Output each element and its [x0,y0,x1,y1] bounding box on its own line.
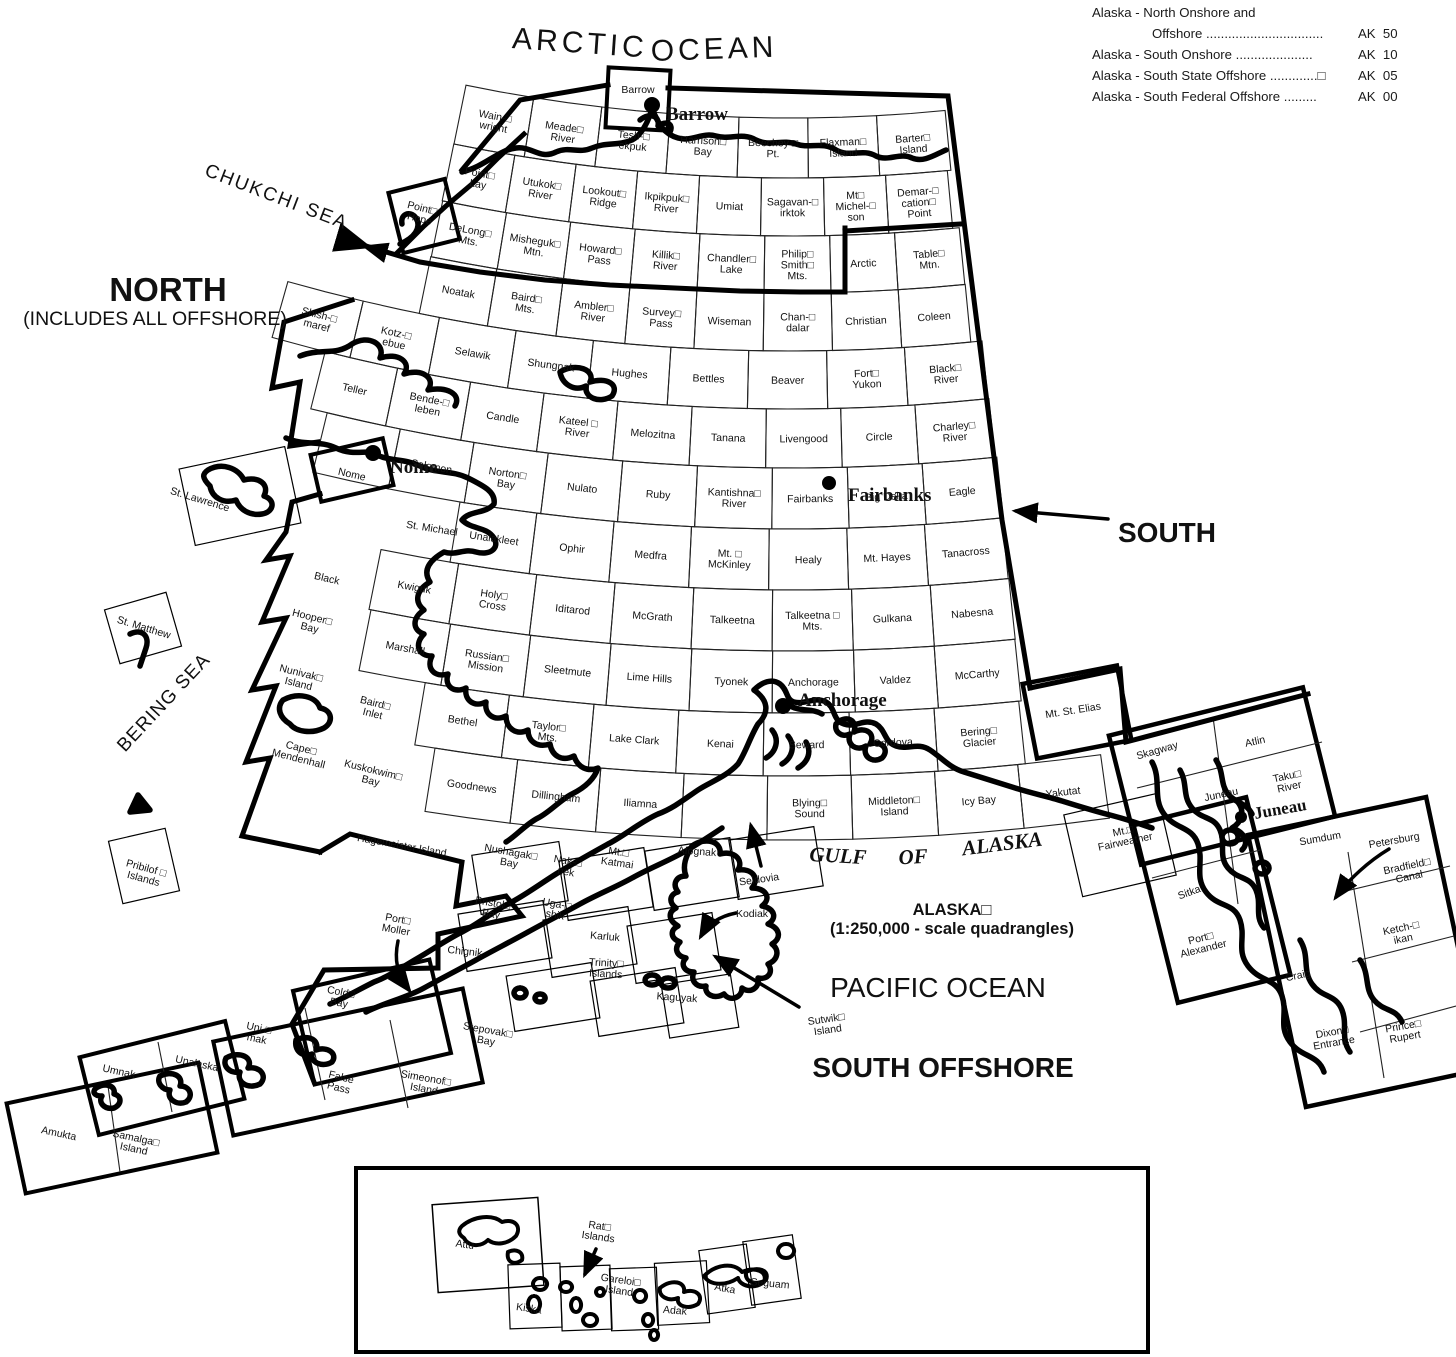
quad-label: Prince□Rupert [1384,1017,1424,1046]
quad-label: Iditarod [555,602,591,618]
quad-label: Circle [865,431,893,444]
quad-label: Taku□River [1272,767,1305,795]
quad-label: Fairbanks [787,493,833,505]
legend: Alaska - North Onshore and Offshore ....… [1092,2,1412,107]
quad-label: Karluk [590,930,621,945]
quad-label: Shungnak [527,357,576,375]
quad-label: Black□River [929,362,963,388]
quad-label: Beaver [771,375,805,387]
sea-label: ARCTIC [511,22,649,64]
panhandle-grid-lines [108,717,1456,1172]
quad-label: Kateel □River [557,414,599,441]
quad-label: Candle [485,410,520,427]
city-label: Nome [390,457,437,478]
legend-label: Alaska - South State Offshore ..........… [1092,65,1358,86]
quad-label: Hughes [611,366,648,381]
quad-label: Ruby [645,488,671,502]
quad-label: Cordova [873,736,913,750]
quad-label: Seward [789,739,825,751]
quad-label: Afognak [677,844,717,859]
quad-label: Simeonof□Island [398,1068,453,1099]
quad-label: Point□Hope [403,199,439,229]
quad-label: Fort□Yukon [852,367,882,391]
map-box [7,1063,218,1194]
city-dot [1235,811,1247,823]
quad-label: Nabesna [951,606,994,622]
quad-label: Pribilof □Islands [122,857,169,890]
quad-label: Coleen [917,310,951,325]
quad-label: Nulato [566,481,598,496]
quad-label: Stepovak□Bay [460,1020,514,1051]
quad-label: Bethel [447,713,478,729]
quad-label: Baird□Inlet [356,694,392,724]
quad-cell [681,774,768,840]
quad-label: Mt. □McKinley [708,547,752,571]
quad-label: McGrath [632,610,673,625]
quad-label: Tesh-□ekpuk [616,128,651,154]
quad-label: Rat□Islands [581,1218,617,1245]
alaska-quadrangle-index-map: Wain-□wrightMeade□RiverTesh-□ekpukHarris… [0,0,1456,1357]
quad-label: Shish-□maref [298,305,339,336]
quad-label: Talkeetna □Mts. [785,609,840,632]
quad-label: Anchorage [788,676,839,689]
quad-label: Baird□Mts. [509,290,543,317]
aleutian-inset-frame [356,1168,1148,1352]
quad-label: Lime Hills [626,671,672,686]
map-canvas: Wain-□wrightMeade□RiverTesh-□ekpukHarris… [0,0,1456,1357]
quad-label: Beechey □Pt. [748,137,799,160]
quad-label: Trinity□Islands [588,956,624,981]
sea-label: SOUTH OFFSHORE [812,1052,1073,1083]
quad-label: Howard□Pass [577,241,622,268]
quad-label: Unalaska [174,1053,219,1074]
quad-label: Ambler□River [572,299,614,326]
south-arrow [1016,511,1108,519]
quad-label: Icy Bay [961,794,997,809]
sea-label: PACIFIC OCEAN [830,972,1046,1003]
quad-label: Chan-□dalar [780,311,816,334]
quad-label: Kantishna□River [707,486,761,510]
quad-label: Christian [845,314,887,328]
quad-label: Sutwik□Island [807,1011,848,1039]
city-label: Anchorage [798,690,887,711]
city-label: Juneau [1252,795,1307,823]
quad-label: Talkeetna [710,614,755,627]
quad-label: Misheguk□Mtn. [507,232,562,262]
quad-label: Goodnews [446,777,497,796]
quad-label: Philip□Smith□Mts. [781,248,815,282]
quad-label: Tanacross [941,545,990,561]
sea-label: GULF [809,842,867,869]
quad-label: Kiska [515,1301,542,1316]
quad-label: Demar-□cation□Point [897,184,941,221]
quad-label: FalsePass [325,1069,356,1097]
quad-label: Cold□Bay [324,984,356,1012]
quad-label: Samalga□Island [109,1128,161,1160]
legend-label: Alaska - South Federal Offshore ........… [1092,86,1358,107]
quad-label: Bende-□leben [407,390,451,420]
quad-label: St. Michael [405,519,458,539]
legend-code: AK 05 [1358,65,1412,86]
sea-label: BERING SEA [113,650,214,757]
quad-label: Meade□River [543,119,585,147]
map-box [1248,797,1456,1107]
quad-label: Selawik [454,345,492,363]
quad-label: Yakutat [1045,785,1081,801]
quad-label: DeLong□Mts. [446,221,493,252]
legend-label: Alaska - North Onshore and [1092,2,1358,23]
quad-label: Chandler□Lake [707,252,757,277]
quad-label: Cape□Mendenhall [271,736,329,771]
quad-label: Barrow [621,84,655,96]
sea-label: CHUKCHI SEA [202,160,351,234]
quad-label: Umiat [716,200,744,213]
quad-label: Flaxman□Island [820,136,868,160]
quad-label: Skagway [1135,739,1180,762]
sea-label: NORTH [109,271,226,308]
quad-label: Sumdum [1298,829,1342,848]
legend-item: Alaska - South Onshore .................… [1092,44,1412,65]
quad-label: Iliamna [623,797,658,811]
city-dot [775,698,791,714]
city-dot [365,445,381,461]
quad-label: Port□Alexander [1176,927,1228,961]
quad-label: Chignik [447,944,484,960]
quad-label: Kaguyak [656,990,698,1005]
quad-label: Sagavan-□irktok [767,196,819,219]
quad-label: Healy [795,554,823,566]
legend-label: Offshore ...............................… [1092,23,1358,44]
quad-label: Tanana [711,432,746,445]
quad-label: Ophir [559,541,586,556]
quad-label: Attu [455,1238,475,1253]
quad-label: Barter□Island [895,131,932,157]
quad-label: Medfra [634,548,668,562]
quad-label: St. Lawrence [169,485,231,514]
quad-label: Atka [713,1281,736,1296]
sea-label: ALASKA□ [913,901,992,919]
quad-label: Norton□Bay [486,465,527,493]
quad-label: Mt□Michel-□son [835,189,877,224]
quad-label: Tyonek [714,676,749,689]
quad-label: Amukta [40,1124,77,1143]
city-label: Fairbanks [848,485,931,506]
sea-label: SOUTH [1118,517,1216,548]
quad-label: Killik□River [651,248,681,273]
quad-label: Nunivak□Island [276,662,325,695]
quad-label: Charley□River [932,419,977,446]
quad-label: Kodiak [736,908,769,920]
sea-label: OCEAN [650,31,778,68]
quad-label: Petersburg [1368,830,1421,851]
quad-label: Kenai [707,738,734,751]
quad-label: Hagemeister Island [356,832,447,860]
quad-label: Kuskokwim□Bay [340,757,404,794]
quad-label: Mt. Hayes [863,551,911,565]
quad-label: Port□Moller [381,911,414,939]
quad-label: Black [313,570,341,588]
map-labels: Wain-□wrightMeade□RiverTesh-□ekpukHarris… [23,22,1434,1318]
map-box [432,1197,544,1292]
quad-label: Melozitna [630,427,676,442]
quad-label: Utukok□River [520,175,563,203]
sea-label: (1:250,000 - scale quadrangles) [830,920,1074,938]
quad-label: Atlin [1244,734,1267,750]
quad-label: Seguam [750,1276,790,1291]
legend-item: Alaska - North Onshore and [1092,2,1412,23]
legend-code: AK 10 [1358,44,1412,65]
sea-label: OF [898,844,928,869]
legend-label: Alaska - South Onshore .................… [1092,44,1358,65]
quad-label: McCarthy [954,667,1001,683]
quad-label: Sleetmute [543,663,591,680]
quad-label: Bering□Glacier [960,724,999,750]
quad-label: Survey□Pass [641,305,682,331]
quad-label: Valdez [879,673,911,687]
quad-label: Adak [662,1304,688,1318]
quad-label: Wain-□wright [476,108,514,137]
quad-label: Lake Clark [609,732,661,748]
sea-label: (INCLUDES ALL OFFSHORE) [23,308,287,330]
quad-label: Seldovia [738,871,780,889]
quad-label: Noatak [441,283,477,301]
quad-label: Hooper□Bay [288,607,334,639]
legend-item: Offshore ...............................… [1092,23,1412,44]
rat-islands-arrow [585,1249,596,1274]
legend-code: AK 50 [1358,23,1412,44]
quad-label: Holy□Cross [478,587,509,614]
quad-label: Middleton□Island [868,794,922,819]
quad-label: Wiseman [707,315,751,328]
quad-label: Mt. St. Elias [1045,700,1102,721]
quad-label: Ikpikpuk□River [643,190,690,216]
kodiak-arrow [701,913,736,936]
quad-label: Eagle [948,485,976,499]
quad-label: Gulkana [873,612,913,626]
quad-label: Lookout□Ridge [581,184,628,212]
quad-label: Arctic [850,257,877,270]
city-dot [822,476,836,490]
legend-item: Alaska - South Federal Offshore ........… [1092,86,1412,107]
city-label: Barrow [666,104,728,125]
quad-label: Russian□Mission [463,647,511,676]
seldovia-arrow [751,826,761,866]
quad-label: Livengood [779,433,828,445]
petersburg-arrow [1336,849,1389,897]
city-dot [644,97,660,113]
north-boundary-arrow [366,247,384,252]
quad-label: Sitka [1176,883,1202,902]
quad-label: Harrison□Bay [679,134,727,159]
quad-label: Bettles [692,372,725,385]
quad-label: Uni-□mak [243,1020,273,1048]
quad-label: Blying□Sound [792,797,828,820]
legend-code: AK 00 [1358,86,1412,107]
quad-label: Table□Mtn. [913,247,947,272]
sea-label: ALASKA [959,827,1044,861]
legend-item: Alaska - South State Offshore ..........… [1092,65,1412,86]
quad-label: Teller [341,381,369,398]
quad-label: Ketch-□ikan [1382,919,1423,949]
